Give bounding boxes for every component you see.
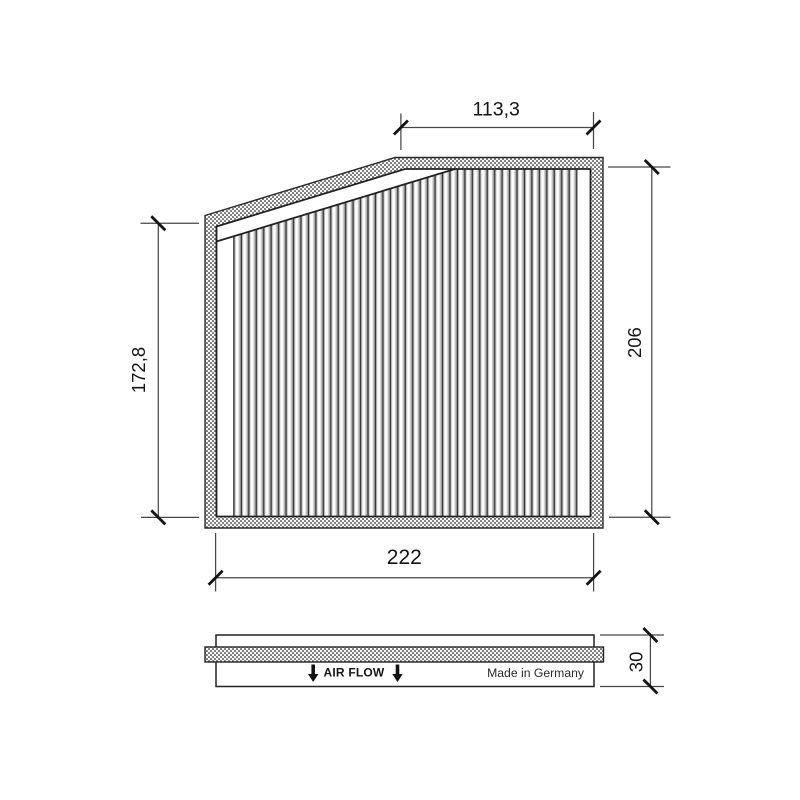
svg-text:30: 30 [626,652,647,673]
svg-text:172,8: 172,8 [128,347,149,393]
svg-text:Made in Germany: Made in Germany [487,666,585,680]
svg-text:AIR FLOW: AIR FLOW [324,666,385,680]
svg-text:206: 206 [624,327,645,358]
svg-text:222: 222 [387,546,422,569]
svg-text:113,3: 113,3 [473,99,520,121]
